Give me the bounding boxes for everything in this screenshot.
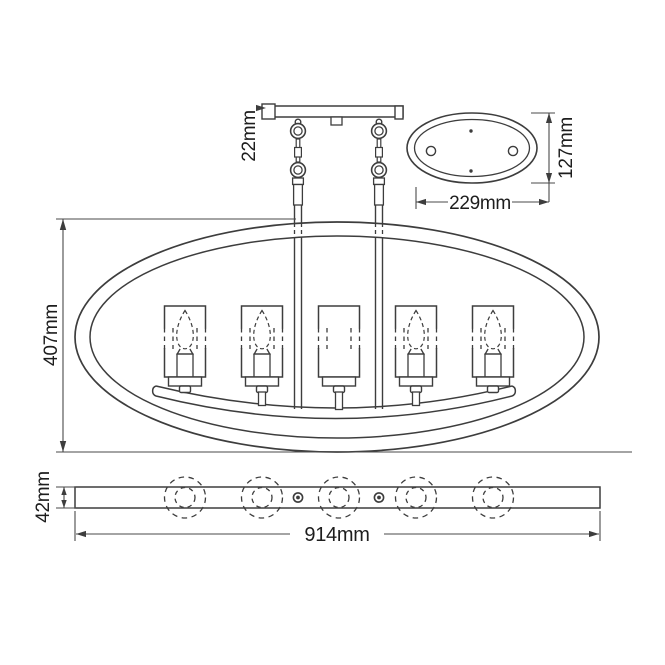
arrowhead-up [60,219,66,230]
arrowhead-left [416,199,426,205]
screw-dot-bottom [469,169,472,172]
dim-body-height: 407mm [41,219,632,452]
lamp-base [246,377,279,393]
arrowhead-down [61,500,66,508]
glass-shade [471,306,514,377]
diagram-page: 127mm 229mm 22mm [0,0,665,665]
lamp-base [323,377,356,393]
lamp-stem [413,392,420,406]
dim-label-canopy-width: 229mm [449,193,511,214]
light-2 [240,306,283,406]
lamp-base [400,377,433,393]
dim-label-overall-width: 914mm [304,524,369,546]
chandelier-dimension-diagram: 127mm 229mm 22mm [0,0,665,665]
dim-label-body-height: 407mm [41,304,62,366]
arrowhead-up [61,487,66,495]
light-1 [163,306,206,393]
dim-canopy-width: 229mm [416,187,549,214]
dim-canopy-height: 127mm [531,113,577,202]
ceiling-plate-body [266,106,403,117]
fixture-bar [75,487,600,508]
light-4 [394,306,437,406]
dim-overall-width: 914mm [75,511,600,546]
screw-dot-top [469,129,472,132]
arrowhead-down [546,173,552,183]
dim-bar-thickness: 42mm [33,471,76,523]
hanger-chain-right [372,119,387,409]
canopy-outer-outline [407,113,537,183]
candle [177,311,194,378]
dim-label-plate-thickness: 22mm [239,110,260,162]
oval-band-outer [75,222,599,452]
lamp-base [477,377,510,393]
hanger-chain-left [291,119,306,409]
candle [408,311,425,378]
glass-shade [163,306,206,377]
arrowhead-left [76,531,86,537]
ceiling-plate-left-cap [262,104,275,119]
light-5 [471,306,514,393]
glass-shade [317,306,360,377]
ceiling-plate-right-cap [395,106,403,119]
arrowhead-down [60,441,66,452]
arrowhead-right [539,199,549,205]
dim-label-canopy-height: 127mm [556,117,577,179]
dim-label-bar-thickness: 42mm [33,471,54,523]
lamp-stem [336,392,343,410]
glass-shade [394,306,437,377]
light-3 [317,306,360,410]
ceiling-plate-center-tab [331,117,342,125]
lamp-stem [259,392,266,406]
canopy-top-view [407,113,537,183]
bottom-view [75,477,600,518]
arrowhead-right [589,531,599,537]
arrowhead-up [546,113,552,123]
candle [254,311,271,378]
front-view-oval-body [75,222,599,452]
glass-shade [240,306,283,377]
candle [485,311,502,378]
